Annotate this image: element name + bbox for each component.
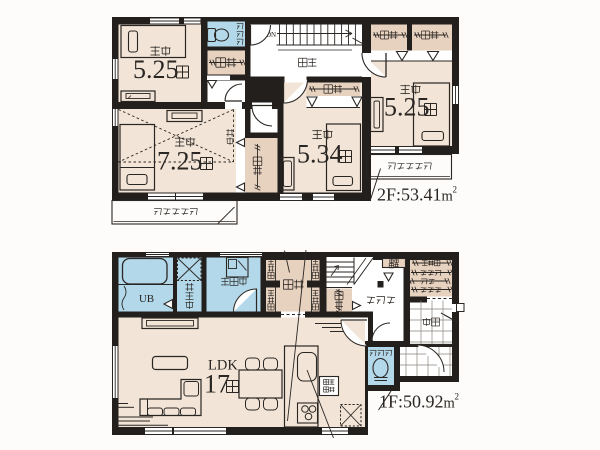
svg-text:2: 2 <box>455 392 460 402</box>
svg-text:7.25: 7.25 <box>157 147 203 176</box>
svg-text:5.25: 5.25 <box>384 93 430 122</box>
svg-text:5.34: 5.34 <box>297 140 343 169</box>
svg-text:2F:53.41: 2F:53.41 <box>377 185 442 205</box>
svg-text:2: 2 <box>453 185 458 195</box>
svg-text:5.25: 5.25 <box>133 55 179 84</box>
svg-text:UB: UB <box>139 293 154 305</box>
svg-text:1F:50.92: 1F:50.92 <box>379 392 444 412</box>
